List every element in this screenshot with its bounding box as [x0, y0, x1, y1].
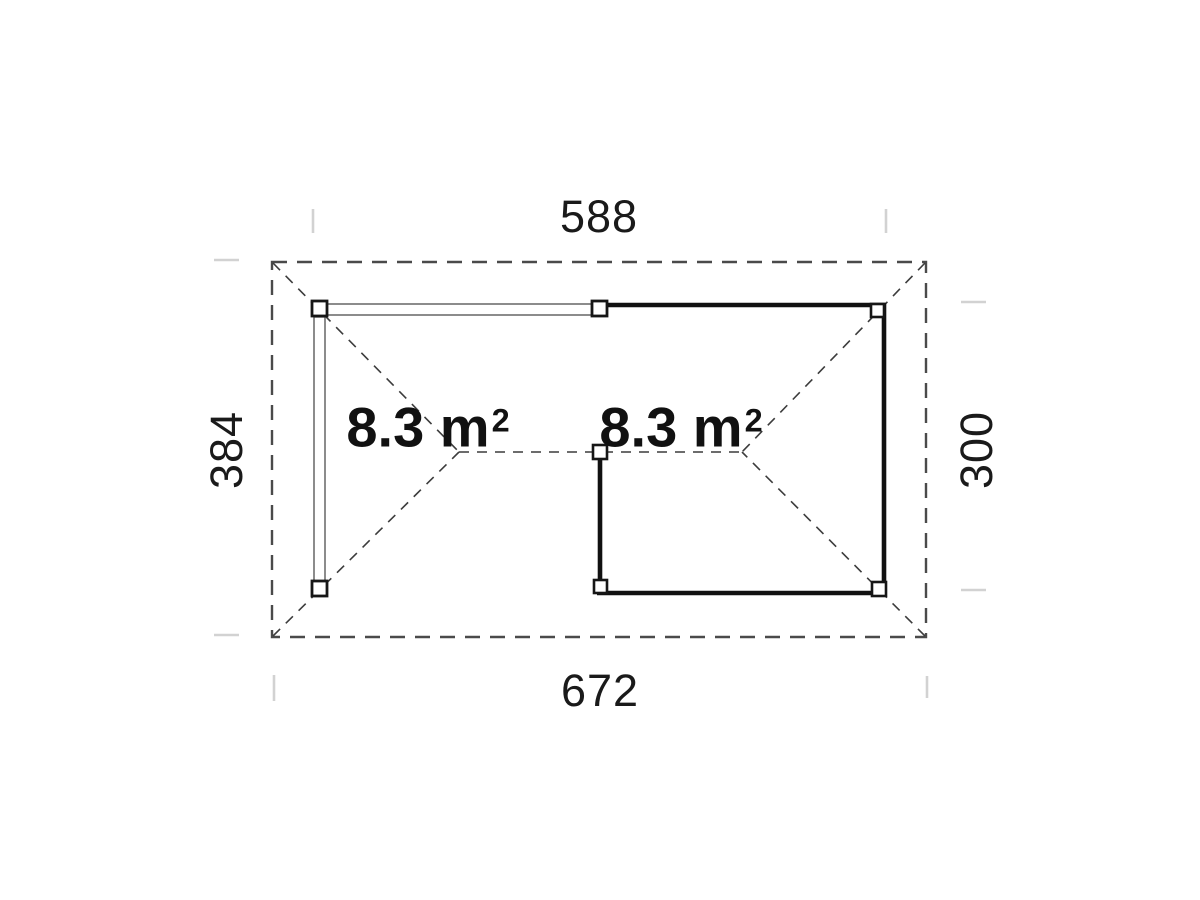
- dimension-right-label: 300: [951, 411, 1003, 489]
- area-label-left: 8.3 m2: [346, 395, 509, 460]
- dimension-bottom-label: 672: [561, 665, 639, 717]
- post-room-top-right: [871, 304, 884, 317]
- beam-top: [327, 304, 592, 315]
- area-label-right: 8.3 m2: [599, 395, 762, 460]
- post-top-middle: [592, 301, 607, 316]
- dimension-left-label: 384: [201, 411, 253, 489]
- area-label-left-sup: 2: [492, 403, 510, 439]
- post-bottom-left: [312, 581, 327, 596]
- dimension-top-label: 588: [560, 191, 638, 243]
- area-label-left-value: 8.3 m: [346, 396, 489, 459]
- area-label-right-sup: 2: [745, 403, 763, 439]
- hip-line-bottom-right: [742, 452, 925, 636]
- post-top-left: [312, 301, 327, 316]
- hip-line-top-right: [742, 263, 925, 452]
- floor-plan: 588 672 384 300 8.3 m2 8.3 m2: [0, 0, 1200, 900]
- post-room-bottom-right: [872, 582, 886, 596]
- post-room-bottom-left: [594, 580, 607, 593]
- hip-line-bottom-left: [273, 452, 459, 636]
- area-label-right-value: 8.3 m: [599, 396, 742, 459]
- beam-left: [314, 317, 325, 581]
